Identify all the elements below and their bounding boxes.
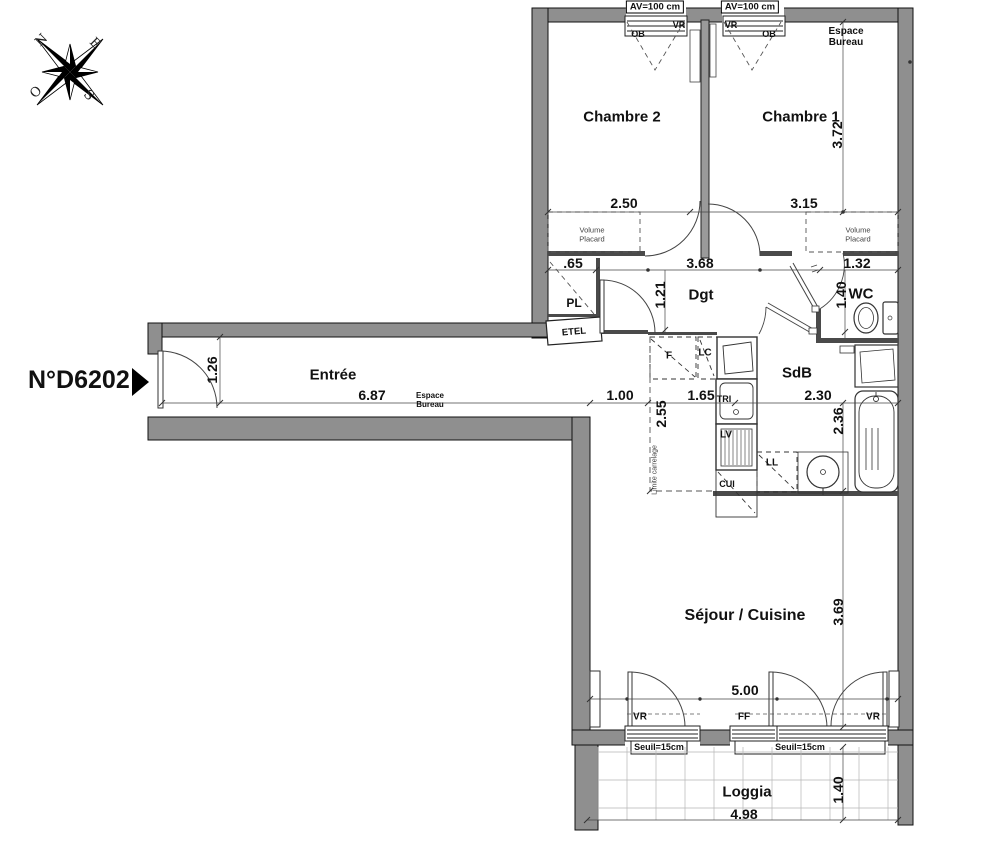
lc-label: LC xyxy=(698,348,711,359)
room-label-sdb: SdB xyxy=(782,365,812,382)
toilet-icon xyxy=(854,302,898,334)
water-heater-icon xyxy=(807,456,839,495)
dim-loggia-width: 4.98 xyxy=(730,806,757,822)
room-label-sejour: Séjour / Cuisine xyxy=(685,607,806,625)
dim-wc-width: 1.32 xyxy=(843,255,870,271)
room-label-etel: ETEL xyxy=(561,325,586,338)
dim-dgt-height: 1.21 xyxy=(652,281,668,308)
tri-label: TRI xyxy=(717,394,732,404)
seuil-label-1: Seuil=15cm xyxy=(634,742,684,752)
room-label-entree: Entrée xyxy=(310,367,357,384)
window-av-label-1: AV=100 cm xyxy=(626,1,684,14)
floor-plan-drawing xyxy=(0,0,1000,857)
room-label-chambre2: Chambre 2 xyxy=(583,109,661,126)
bathtub-icon xyxy=(855,391,898,492)
volume-placard-label-1: Volume Placard xyxy=(572,226,612,243)
dim-sdb-height: 2.36 xyxy=(830,407,846,434)
dim-sejour-height: 3.69 xyxy=(830,598,846,625)
lv-label: LV xyxy=(720,430,732,441)
room-label-loggia: Loggia xyxy=(722,784,771,801)
seuil-label-2: Seuil=15cm xyxy=(775,742,825,752)
washbasin-icon xyxy=(840,345,898,387)
dim-wc-height: 1.40 xyxy=(833,281,849,308)
room-label-wc: WC xyxy=(849,286,874,303)
bathroom-fixtures xyxy=(840,302,898,492)
vr-label-bottom-left: VR xyxy=(633,712,647,723)
dim-entree-width: 6.87 xyxy=(358,387,385,403)
vr-label-bottom-right: VR xyxy=(866,712,880,723)
bedroom-divider-wall xyxy=(690,20,716,258)
ff-label: FF xyxy=(738,712,750,723)
dim-dgt-width: 3.68 xyxy=(686,255,713,271)
window-av-label-2: AV=100 cm xyxy=(721,1,779,14)
outer-walls xyxy=(148,8,913,830)
window-vr-label-1: VR xyxy=(673,20,686,30)
entry-arrow-icon xyxy=(132,368,149,396)
espace-bureau-label-entree: Espace Bureau xyxy=(412,392,448,410)
dim-cuisine-width: 1.65 xyxy=(687,387,714,403)
floor-plan: N°D6202 N E O S AV=100 cm AV=100 cm VR V… xyxy=(0,0,1000,857)
dim-sdb-width: 2.30 xyxy=(804,387,831,403)
unit-number: N°D6202 xyxy=(28,366,130,395)
dim-cuisine-height: 2.55 xyxy=(653,400,669,427)
dim-pl-width: .65 xyxy=(563,255,582,271)
cui-label: CUI xyxy=(719,479,735,489)
room-label-pl: PL xyxy=(566,296,581,310)
kitchen-fixtures xyxy=(650,337,848,517)
dim-gap-width: 1.00 xyxy=(606,387,633,403)
room-label-dgt: Dgt xyxy=(689,287,714,304)
fridge-label: F xyxy=(666,351,672,362)
dim-chambre2-width: 2.50 xyxy=(610,195,637,211)
dim-chambre1-height: 3.72 xyxy=(829,121,845,148)
window-ob-label-2: OB xyxy=(762,29,776,39)
dim-sejour-width: 5.00 xyxy=(731,682,758,698)
volume-placard-label-2: Volume Placard xyxy=(838,226,878,243)
dim-chambre1-width: 3.15 xyxy=(790,195,817,211)
window-vr-label-2: VR xyxy=(725,20,738,30)
espace-bureau-label-top: Espace Bureau xyxy=(821,26,871,48)
limite-carrelage-label: Limite carrelage xyxy=(652,445,659,495)
window-ob-label-1: OB xyxy=(631,29,645,39)
ll-label: LL xyxy=(766,458,778,469)
dim-entree-height: 1.26 xyxy=(204,356,220,383)
dim-loggia-height: 1.40 xyxy=(830,776,846,803)
